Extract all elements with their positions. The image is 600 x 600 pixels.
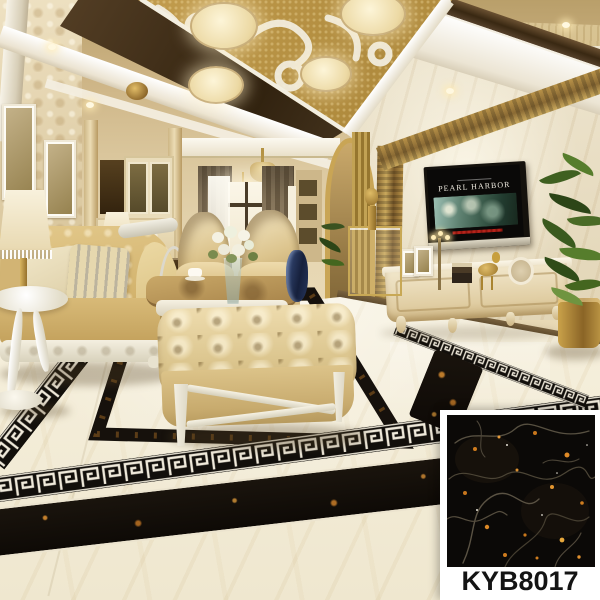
shadow xyxy=(380,326,560,340)
sofa-base-rail xyxy=(0,340,170,362)
tile-swatch-image xyxy=(447,415,595,567)
flower xyxy=(224,226,237,238)
sculpture-stand xyxy=(368,206,376,230)
blue-vase xyxy=(286,250,308,302)
tv-movie-poster xyxy=(433,193,518,230)
showroom-photo: PEARL HARBOR xyxy=(0,0,600,600)
candelabra-cup xyxy=(438,231,443,236)
deer-figurine-leg xyxy=(481,276,483,290)
tv-caption-bar xyxy=(453,228,503,234)
decorative-plate xyxy=(508,257,534,285)
deer-figurine-head xyxy=(492,252,500,263)
tv-movie-title: PEARL HARBOR xyxy=(428,179,521,194)
flower xyxy=(218,244,230,255)
console-foot xyxy=(506,312,515,326)
flower-leaf xyxy=(208,250,218,259)
flower xyxy=(212,232,224,243)
candelabra-cup xyxy=(445,235,450,240)
photo xyxy=(418,250,429,272)
plant-pot xyxy=(558,298,600,348)
gold-bust-sculpture xyxy=(365,188,378,205)
floor-lamp-shade xyxy=(0,190,52,258)
candelabra xyxy=(438,238,441,290)
book-stack xyxy=(452,263,472,283)
saucer xyxy=(185,276,205,281)
glass-pedestal-table xyxy=(348,226,402,296)
candelabra-cup xyxy=(431,235,436,240)
shadow xyxy=(168,424,368,450)
flower xyxy=(244,240,254,250)
flower-leaf xyxy=(226,254,237,263)
product-code-label: KYB8017 xyxy=(440,564,600,598)
photo-frame xyxy=(414,246,433,276)
console-foot xyxy=(448,318,457,333)
deer-figurine-leg xyxy=(491,276,493,290)
black-gold-marble-tile xyxy=(447,415,595,567)
console-foot xyxy=(396,316,406,333)
flower-leaf xyxy=(248,252,258,261)
